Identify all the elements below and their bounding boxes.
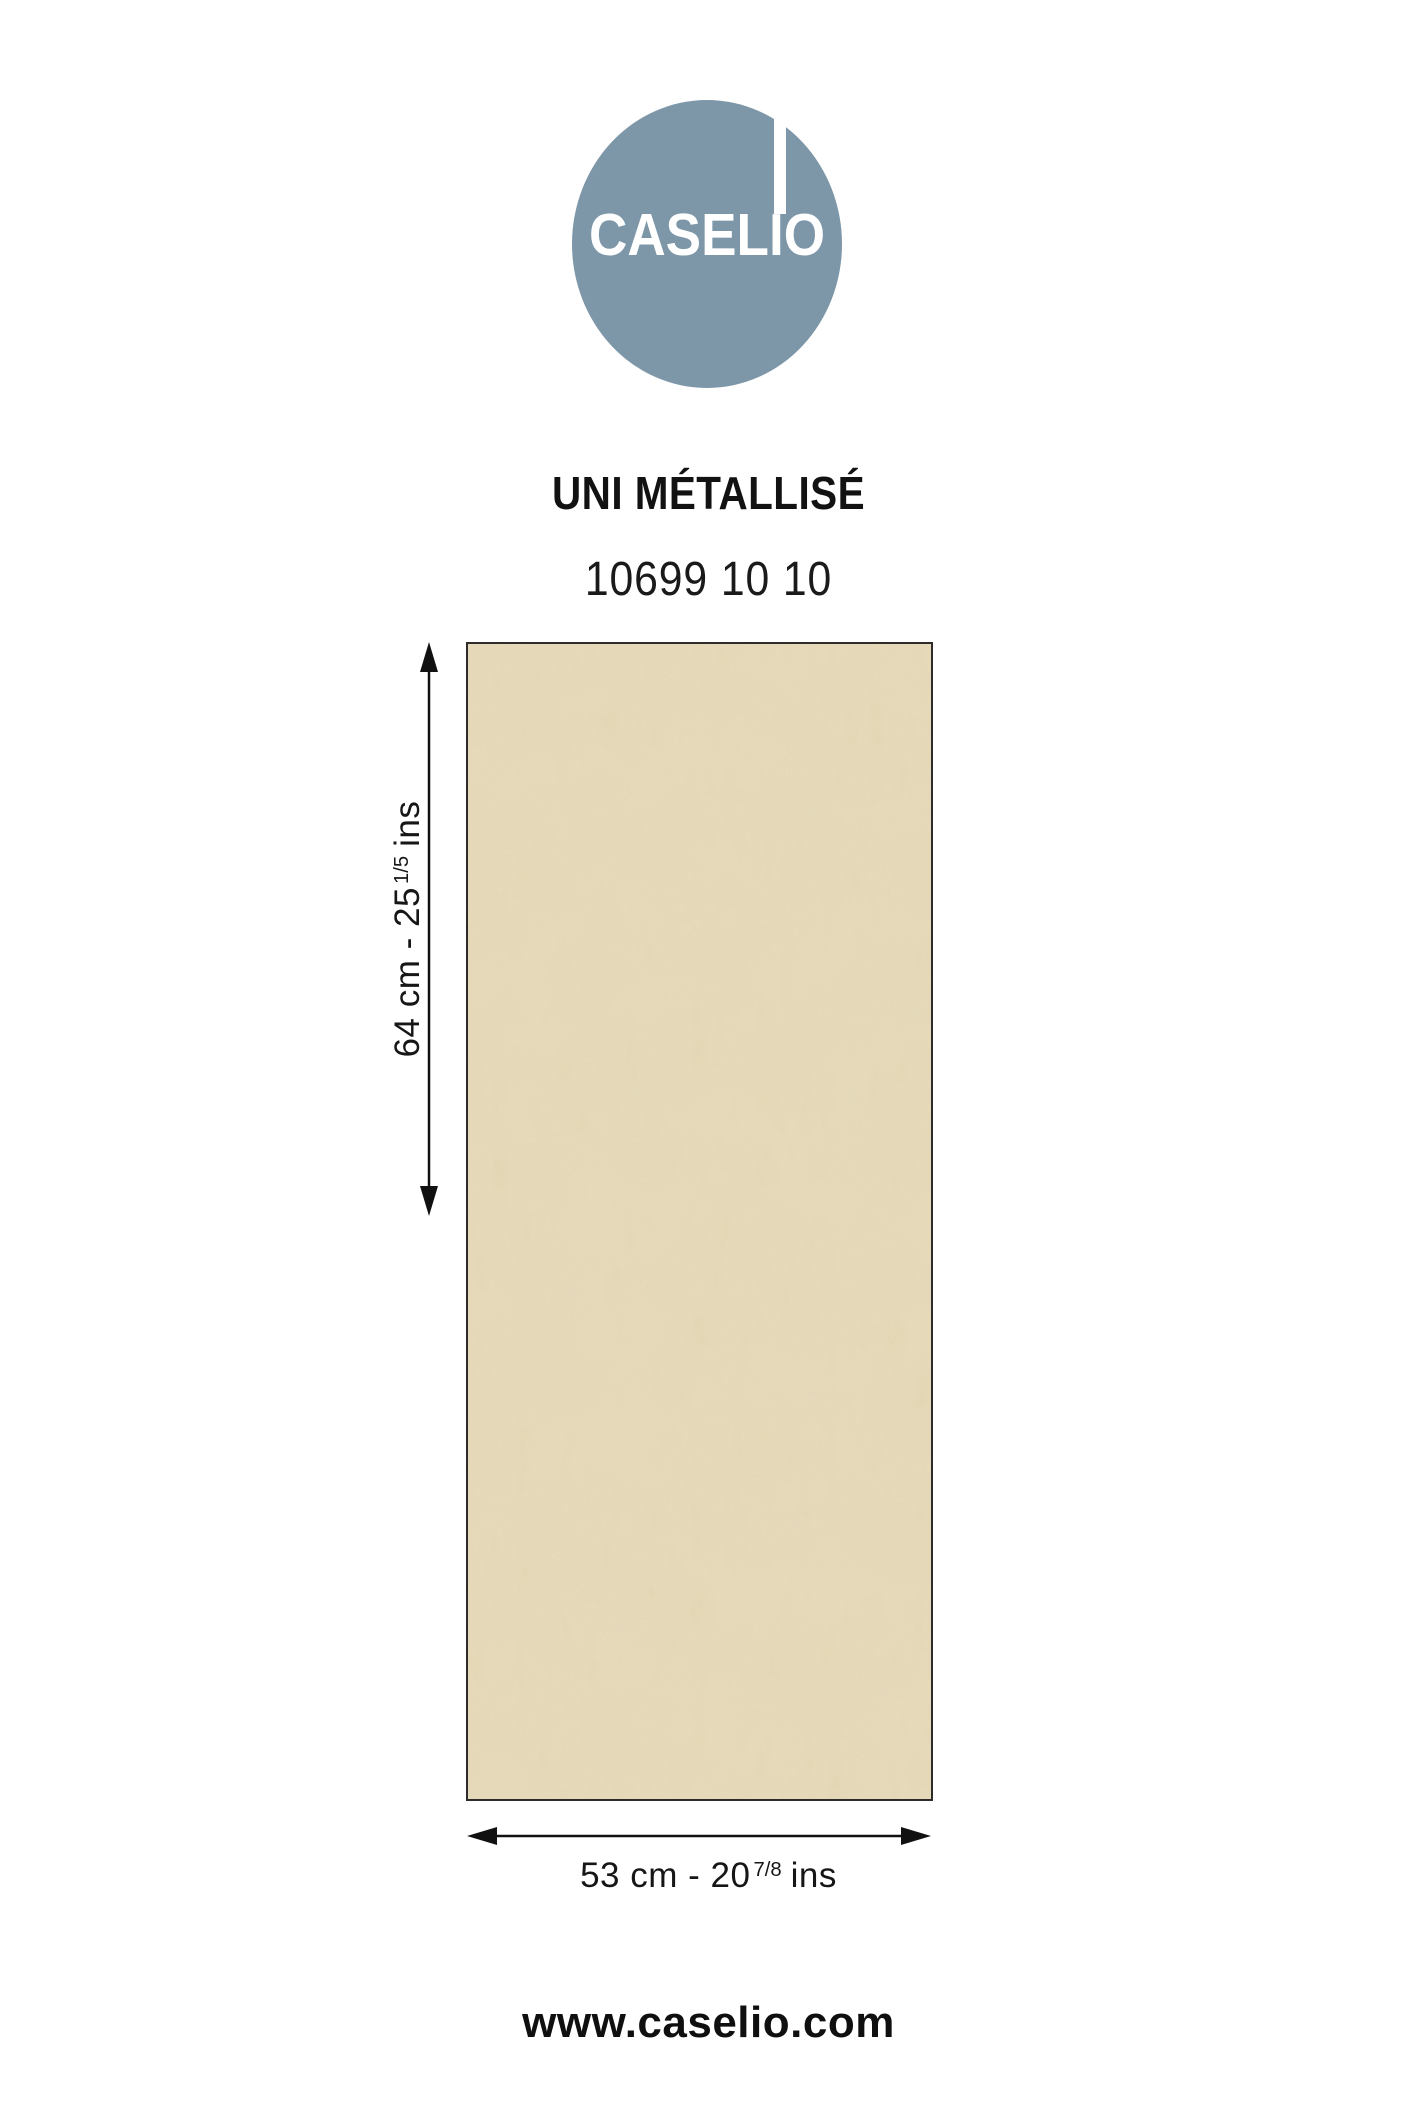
height-value: 64 cm - 25 xyxy=(388,887,427,1057)
wallpaper-texture xyxy=(468,644,931,1799)
height-unit: ins xyxy=(388,801,427,847)
height-dimension-label: 64 cm - 251/5ins xyxy=(390,769,426,1089)
product-sheet: CASELIO UNI MÉTALLISÉ 10699 10 10 xyxy=(0,0,1417,2126)
width-unit: ins xyxy=(791,1856,837,1895)
width-arrow-head-right-icon xyxy=(901,1827,931,1845)
height-arrow-head-up-icon xyxy=(420,642,438,672)
wallpaper-sample-image xyxy=(466,642,933,1801)
product-name: UNI MÉTALLISÉ xyxy=(85,470,1332,516)
logo-accent-bar xyxy=(774,118,786,214)
width-fraction: 7/8 xyxy=(753,1852,781,1888)
height-fraction: 1/5 xyxy=(384,856,420,884)
height-arrow-head-down-icon xyxy=(420,1186,438,1216)
logo-brand-text: CASELIO xyxy=(586,206,829,265)
width-dimension-arrow xyxy=(464,1823,934,1849)
width-dimension-label: 53 cm - 207/8ins xyxy=(0,1858,1417,1899)
width-arrow-head-left-icon xyxy=(467,1827,497,1845)
caselio-logo: CASELIO xyxy=(572,100,842,388)
product-reference: 10699 10 10 xyxy=(78,556,1339,604)
width-value: 53 cm - 20 xyxy=(580,1856,750,1895)
website-text: www.caselio.com xyxy=(0,2001,1417,2045)
